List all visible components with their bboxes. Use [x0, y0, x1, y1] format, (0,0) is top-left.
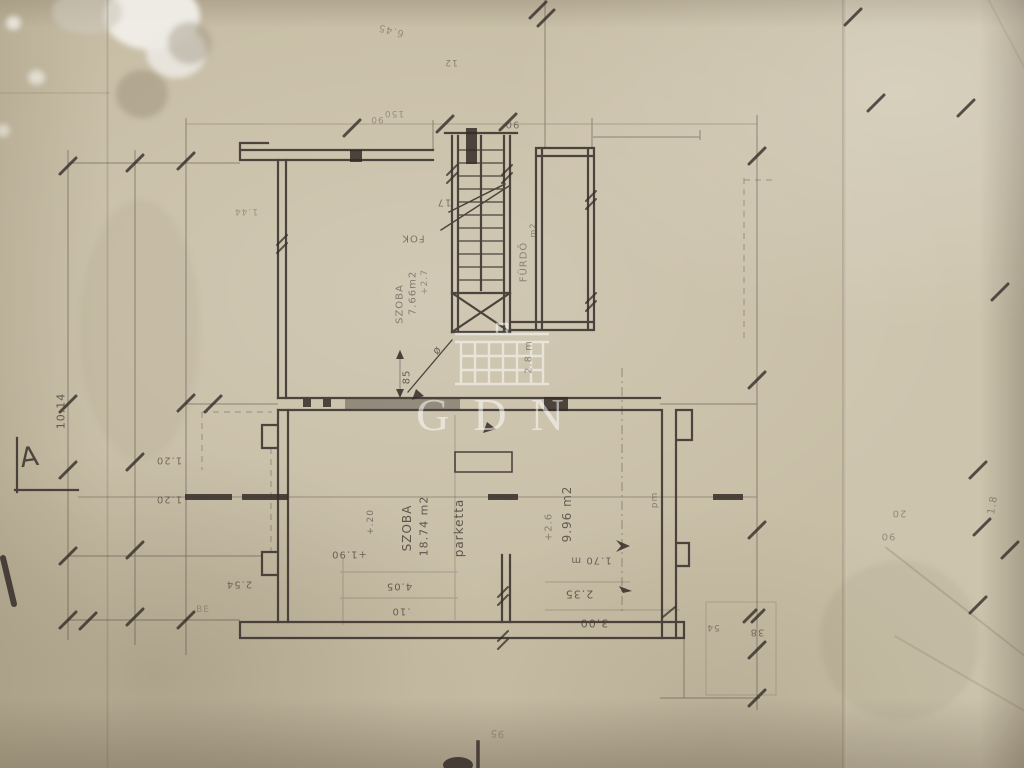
plan-label: SZOBA — [400, 505, 414, 552]
dimension-ticks — [60, 2, 1018, 706]
floorplan-photo: GDN SZOBA18.74 m2parketta9.96 m2+2.62.8 … — [0, 0, 1024, 768]
plan-label: 90 — [881, 531, 896, 542]
plan-label: FOK — [401, 233, 424, 244]
plan-label: BE — [196, 605, 210, 615]
plan-label: 3.00 — [580, 617, 609, 630]
plan-label: 12 — [444, 57, 457, 67]
plan-label: 1.20 — [156, 455, 182, 466]
floorplan-drawing: GDN — [0, 0, 1024, 768]
plan-label: pm — [650, 492, 660, 508]
plan-label: .10 — [392, 606, 411, 617]
plan-label: 2.8 m — [524, 340, 535, 374]
plan-label: SZOBA — [395, 284, 406, 324]
plan-label: 7.66m2 — [408, 271, 419, 315]
plan-label: parketta — [452, 499, 466, 558]
plan-label: 18.74 m2 — [418, 496, 431, 557]
plan-label: m2 — [529, 223, 538, 238]
plan-label: 17 — [437, 197, 452, 208]
plan-label: 54 — [706, 622, 719, 632]
plan-label: 90 — [505, 119, 520, 130]
gdn-watermark: GDN — [416, 324, 588, 440]
watermark-text: GDN — [416, 389, 588, 440]
plan-label: +1.90 — [331, 549, 367, 560]
walls — [3, 133, 692, 768]
plan-label: 4.05 — [386, 581, 412, 592]
plan-label: +2.7 — [420, 269, 430, 295]
plan-label: FÜRDŐ — [519, 242, 530, 283]
plan-label: 10.14 — [55, 393, 68, 430]
dimension-lines — [68, 0, 775, 710]
plan-label: 38 — [750, 627, 765, 638]
pencil-lines — [340, 415, 776, 695]
plan-label: +.20 — [366, 509, 376, 535]
plan-label: 9.96 m2 — [560, 486, 574, 543]
plan-label: 95 — [489, 727, 505, 739]
plan-label: 2.35 — [565, 588, 594, 601]
plan-label: 2.54 — [226, 579, 252, 590]
plan-label: 1.44 — [234, 206, 258, 216]
plan-label: 20 — [892, 508, 907, 519]
plan-label: 1.70 m — [570, 555, 611, 566]
gdn-logo-icon — [455, 324, 549, 384]
plan-label: 85 — [402, 370, 413, 385]
plan-label: 150 — [384, 108, 404, 118]
plan-label: 90 — [370, 114, 383, 124]
plan-label: 1.20 — [156, 494, 182, 505]
plan-label: +2.6 — [544, 513, 555, 541]
